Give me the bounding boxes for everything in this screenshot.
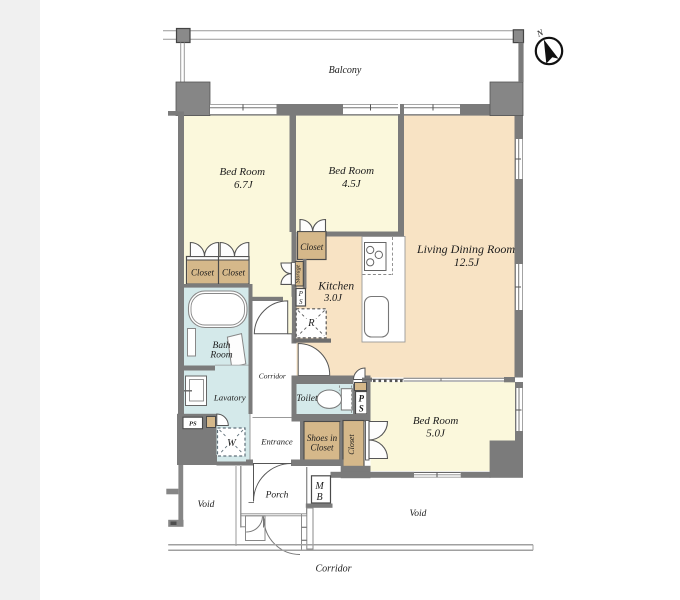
svg-text:P: P	[358, 394, 364, 404]
svg-text:Kitchen: Kitchen	[317, 281, 354, 293]
svg-text:Storage: Storage	[295, 264, 301, 283]
svg-text:3.0J: 3.0J	[323, 293, 343, 304]
svg-text:Void: Void	[198, 500, 215, 510]
svg-text:Closet: Closet	[300, 242, 324, 252]
svg-text:Toilet: Toilet	[296, 394, 318, 404]
svg-text:Closet: Closet	[222, 268, 246, 278]
svg-text:Lavatory: Lavatory	[213, 393, 246, 403]
svg-text:M: M	[314, 481, 324, 492]
svg-text:B: B	[316, 492, 322, 503]
svg-text:PS: PS	[189, 421, 197, 428]
svg-text:Bath: Bath	[213, 341, 231, 351]
svg-text:Corridor: Corridor	[259, 371, 286, 380]
svg-text:S: S	[299, 298, 303, 306]
svg-text:5.0J: 5.0J	[426, 428, 446, 440]
svg-text:P: P	[298, 290, 304, 298]
svg-text:Shoes in: Shoes in	[307, 433, 338, 443]
svg-text:Bed Room: Bed Room	[413, 415, 459, 427]
svg-text:Corridor: Corridor	[315, 564, 351, 575]
svg-text:Closet: Closet	[310, 443, 334, 453]
svg-text:4.5J: 4.5J	[342, 178, 362, 190]
svg-text:W: W	[227, 438, 237, 449]
svg-text:R: R	[307, 318, 315, 329]
svg-text:Room: Room	[209, 351, 232, 361]
svg-text:Porch: Porch	[265, 491, 289, 501]
svg-text:12.5J: 12.5J	[454, 257, 480, 269]
svg-text:Closet: Closet	[347, 434, 356, 455]
svg-text:Bed Room: Bed Room	[329, 165, 375, 177]
svg-text:Entrance: Entrance	[260, 437, 293, 447]
svg-text:S: S	[359, 404, 364, 414]
svg-text:Void: Void	[410, 509, 427, 519]
svg-text:Bed Room: Bed Room	[220, 166, 266, 178]
svg-text:Balcony: Balcony	[329, 65, 362, 76]
svg-text:Living Dining Room: Living Dining Room	[416, 242, 515, 256]
svg-text:6.7J: 6.7J	[234, 179, 254, 191]
svg-text:Closet: Closet	[191, 268, 215, 278]
